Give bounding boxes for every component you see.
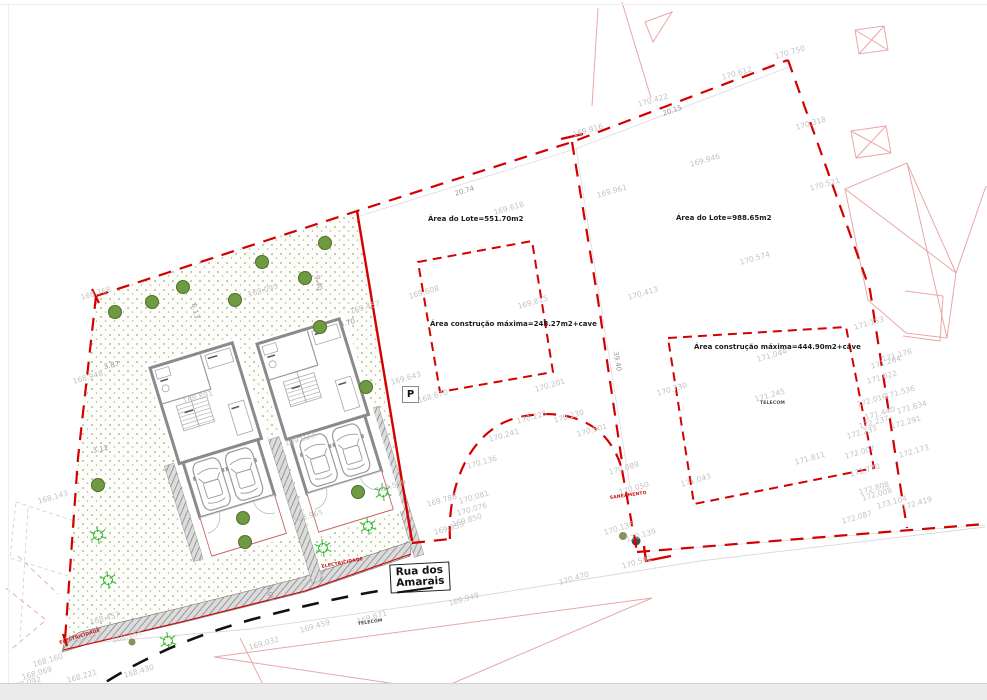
- tree-icon: [237, 512, 250, 525]
- tree-icon: [109, 306, 122, 319]
- canvas-edge-left: [8, 4, 9, 683]
- survey-dot-icon: [129, 639, 136, 646]
- lot2-construction-label: Área construção máxima=444.90m2+cave: [694, 344, 861, 351]
- tree-icon: [239, 536, 252, 549]
- tree-icon: [314, 321, 327, 334]
- tree-icon: [92, 479, 105, 492]
- canvas-bottom-bar: [0, 683, 987, 700]
- tree-icon: [146, 296, 159, 309]
- tree-icon: [177, 281, 190, 294]
- lot2-area-label: Área do Lote=988.65m2: [676, 215, 771, 222]
- parking-symbol: P: [402, 386, 419, 403]
- cad-site-plan: Área do Lote=551.70m2 Área construção má…: [0, 0, 987, 700]
- survey-dot-icon: [619, 532, 627, 540]
- lot1-construction-label: Área construção máxima=248.27m2+cave: [430, 321, 597, 328]
- tree-icon: [360, 381, 373, 394]
- parking-letter: P: [407, 390, 414, 400]
- tree-icon: [256, 256, 269, 269]
- tree-icon: [319, 237, 332, 250]
- construction-limit-squares: [418, 241, 874, 504]
- tree-icon: [352, 486, 365, 499]
- canvas-edge-top: [0, 4, 987, 5]
- lot1-area-label: Área do Lote=551.70m2: [428, 216, 523, 223]
- tree-icon: [229, 294, 242, 307]
- tree-icon: [299, 272, 312, 285]
